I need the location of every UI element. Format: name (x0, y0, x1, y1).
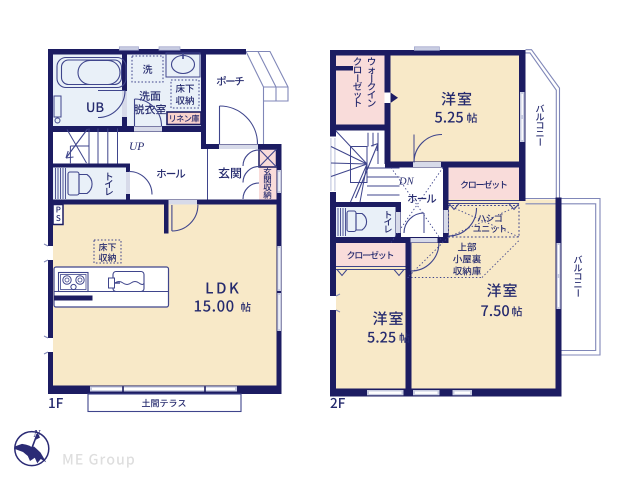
svg-text:N: N (33, 429, 42, 440)
svg-text:DN: DN (398, 177, 415, 188)
svg-text:UP: UP (129, 141, 144, 153)
